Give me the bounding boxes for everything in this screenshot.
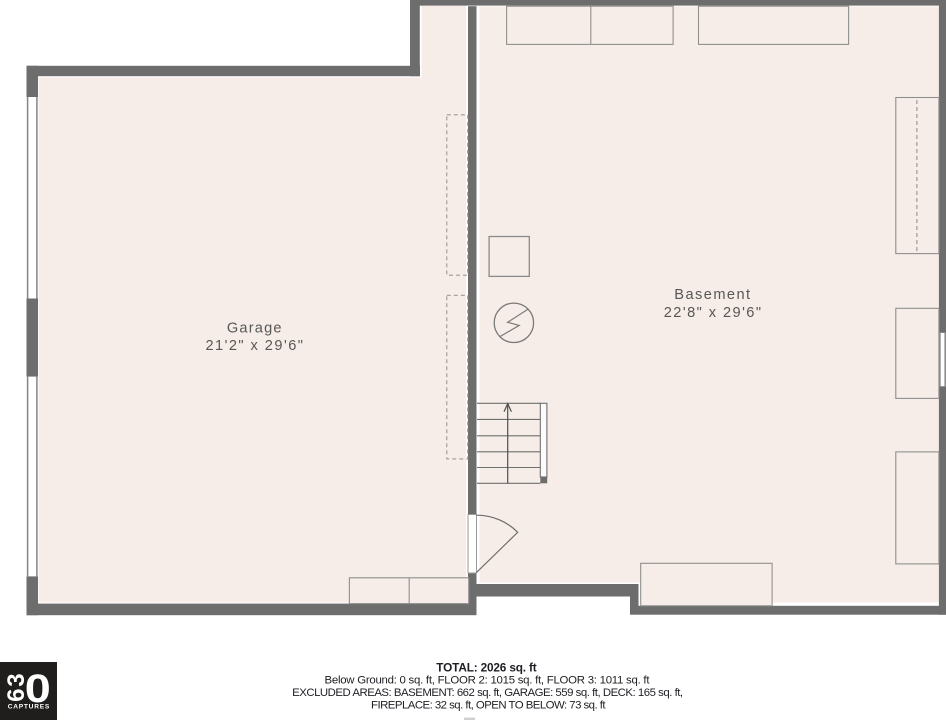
svg-text:Below Ground: 0 sq. ft, FLOOR: Below Ground: 0 sq. ft, FLOOR 2: 1015 sq… — [325, 675, 651, 687]
svg-text:EXCLUDED AREAS: BASEMENT: 662: EXCLUDED AREAS: BASEMENT: 662 sq. ft, GA… — [292, 687, 683, 699]
svg-text:22'8" x 29'6": 22'8" x 29'6" — [664, 305, 761, 321]
svg-text:FIREPLACE: 32 sq. ft, OPEN TO: FIREPLACE: 32 sq. ft, OPEN TO BELOW: 73 … — [371, 699, 606, 711]
svg-text:Garage: Garage — [227, 320, 282, 336]
svg-text:TOTAL: 2026 sq. ft: TOTAL: 2026 sq. ft — [436, 661, 536, 675]
svg-text:21'2" x 29'6": 21'2" x 29'6" — [205, 338, 303, 354]
svg-text:CAPTURES: CAPTURES — [8, 704, 50, 711]
